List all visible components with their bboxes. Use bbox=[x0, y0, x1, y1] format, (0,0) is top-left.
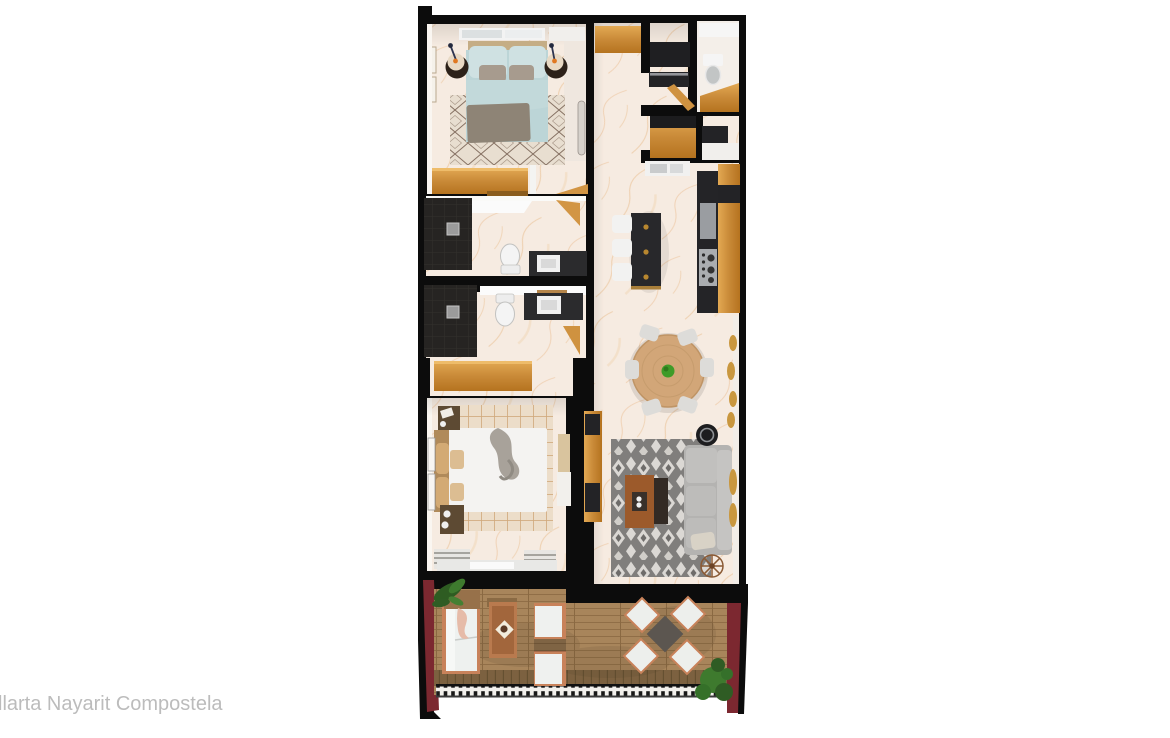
svg-text:llarta Nayarit Compostela: llarta Nayarit Compostela bbox=[0, 693, 223, 715]
